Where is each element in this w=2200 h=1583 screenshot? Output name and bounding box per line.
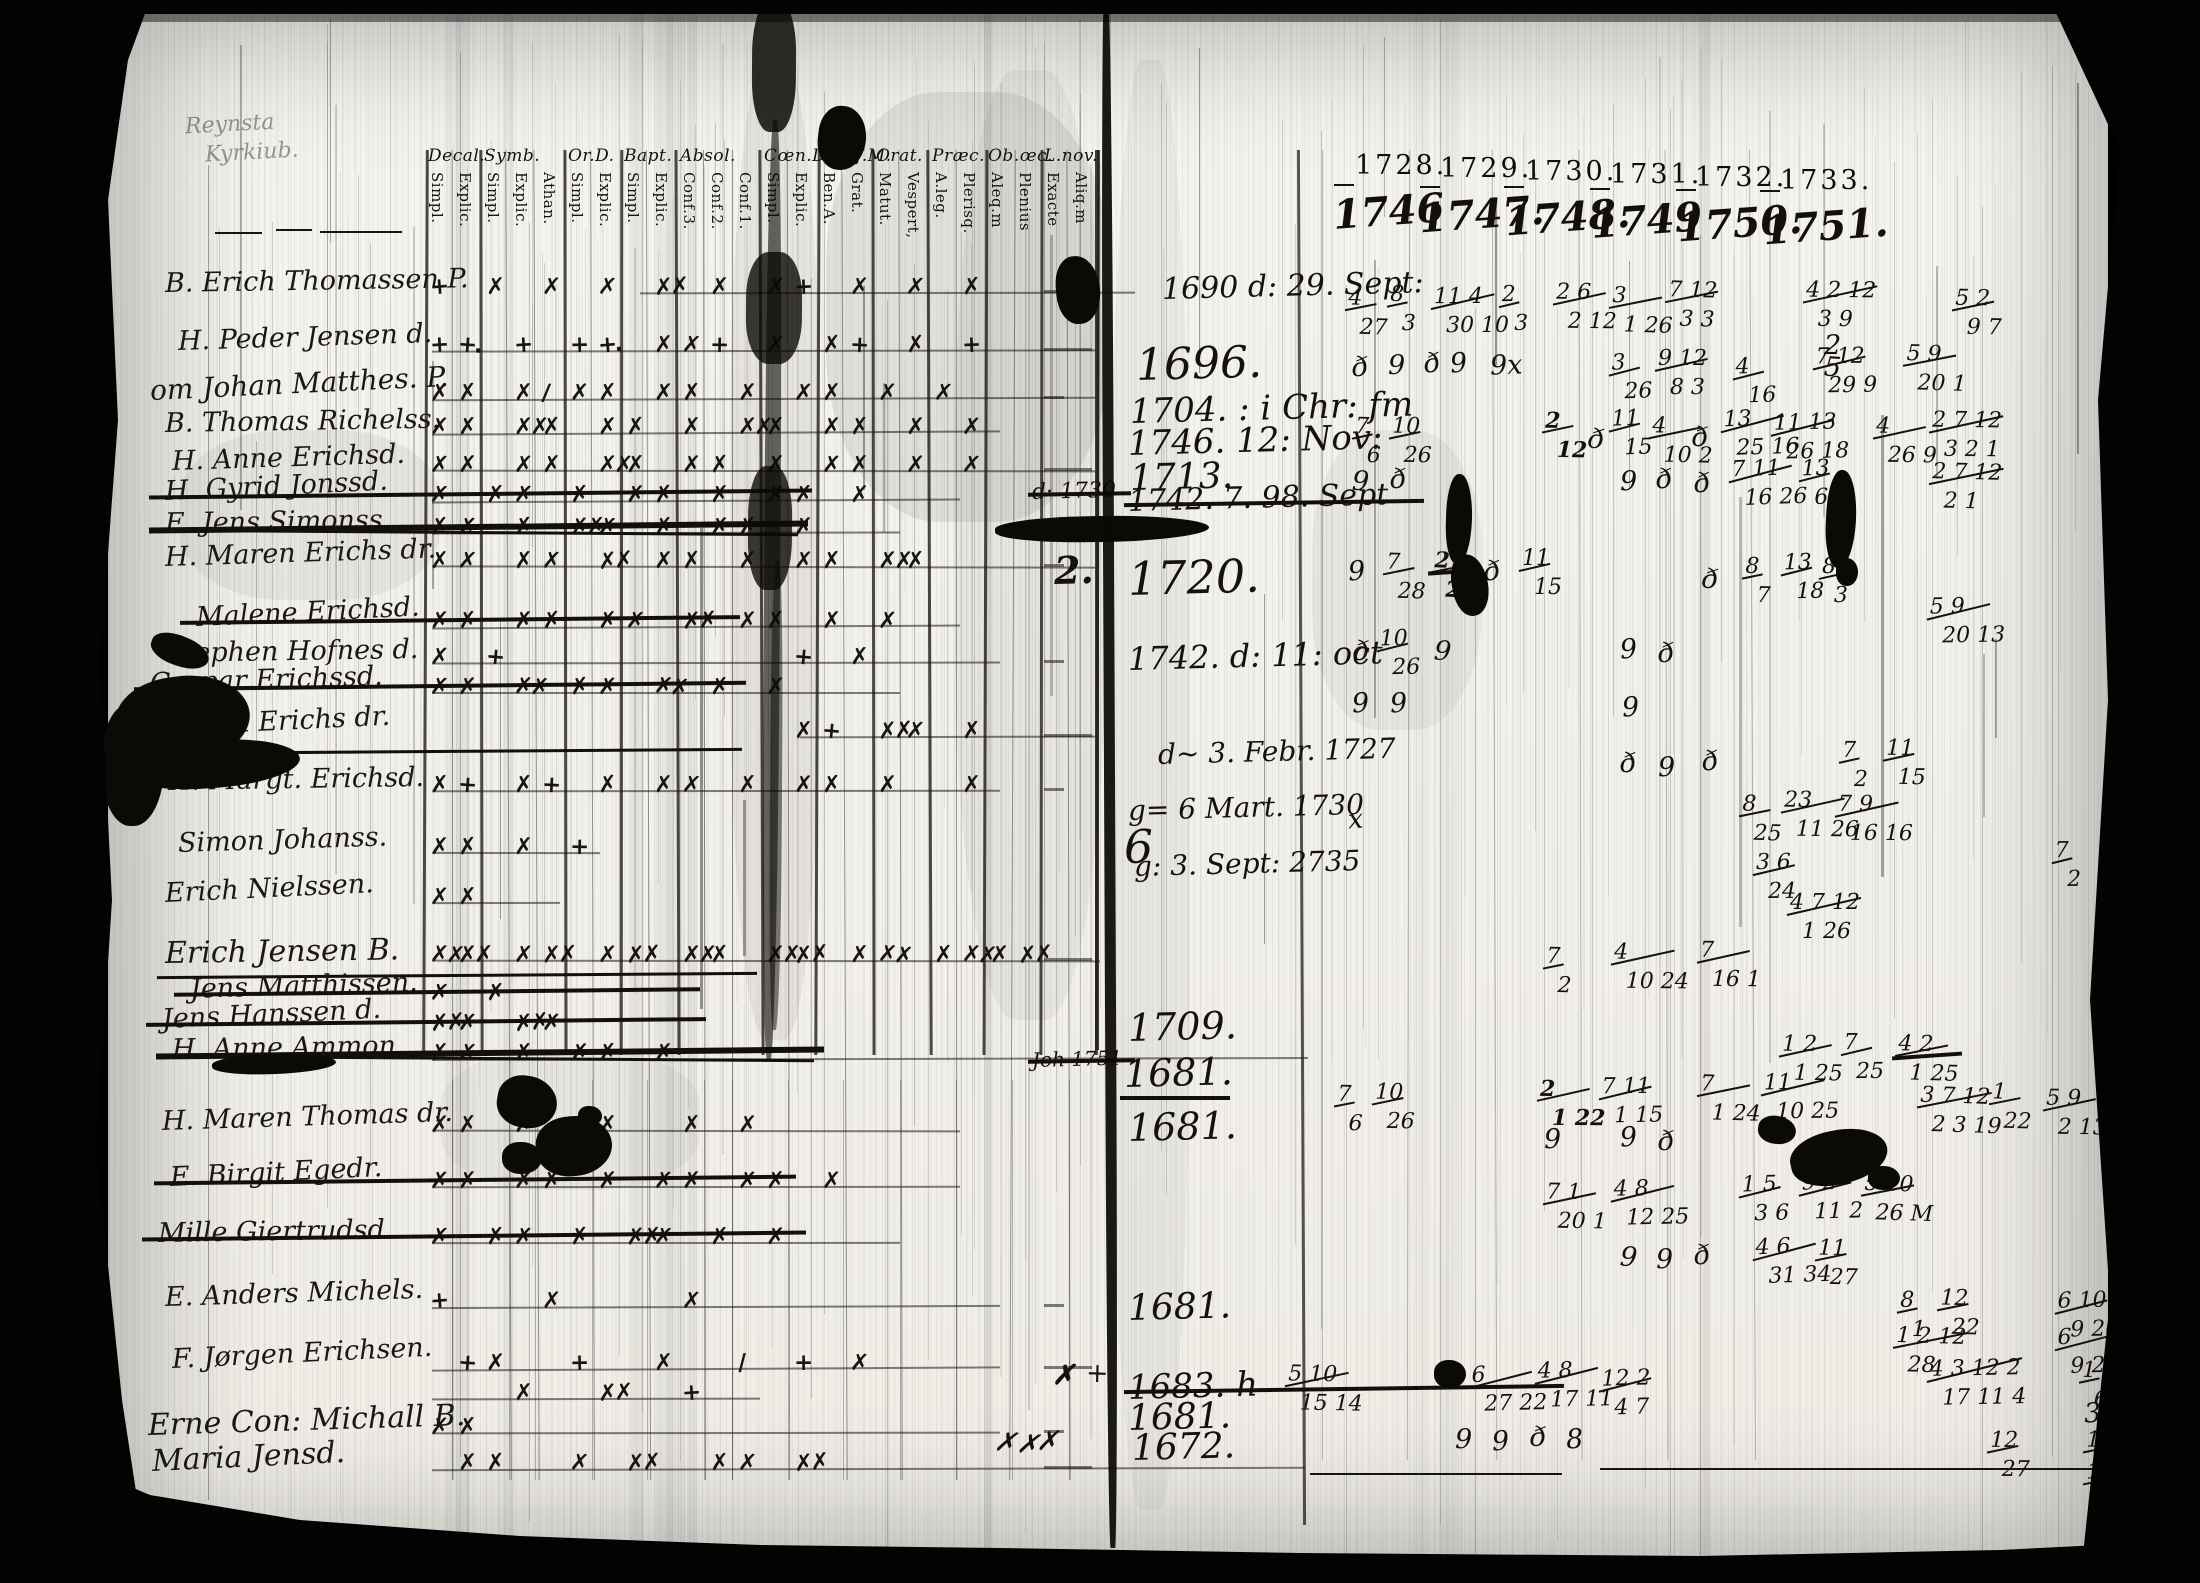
film-black-borders — [0, 0, 2200, 1583]
film-border-top-shade — [0, 14, 2200, 22]
film-border-bottom — [0, 1420, 2200, 1583]
film-border-left — [0, 0, 160, 1583]
film-border-right — [2040, 0, 2200, 1583]
film-border-top — [0, 0, 2200, 14]
microfilm-scan-page: Decal.Simpl.Explic.Symb.Simpl.Explic.Ath… — [0, 0, 2200, 1583]
